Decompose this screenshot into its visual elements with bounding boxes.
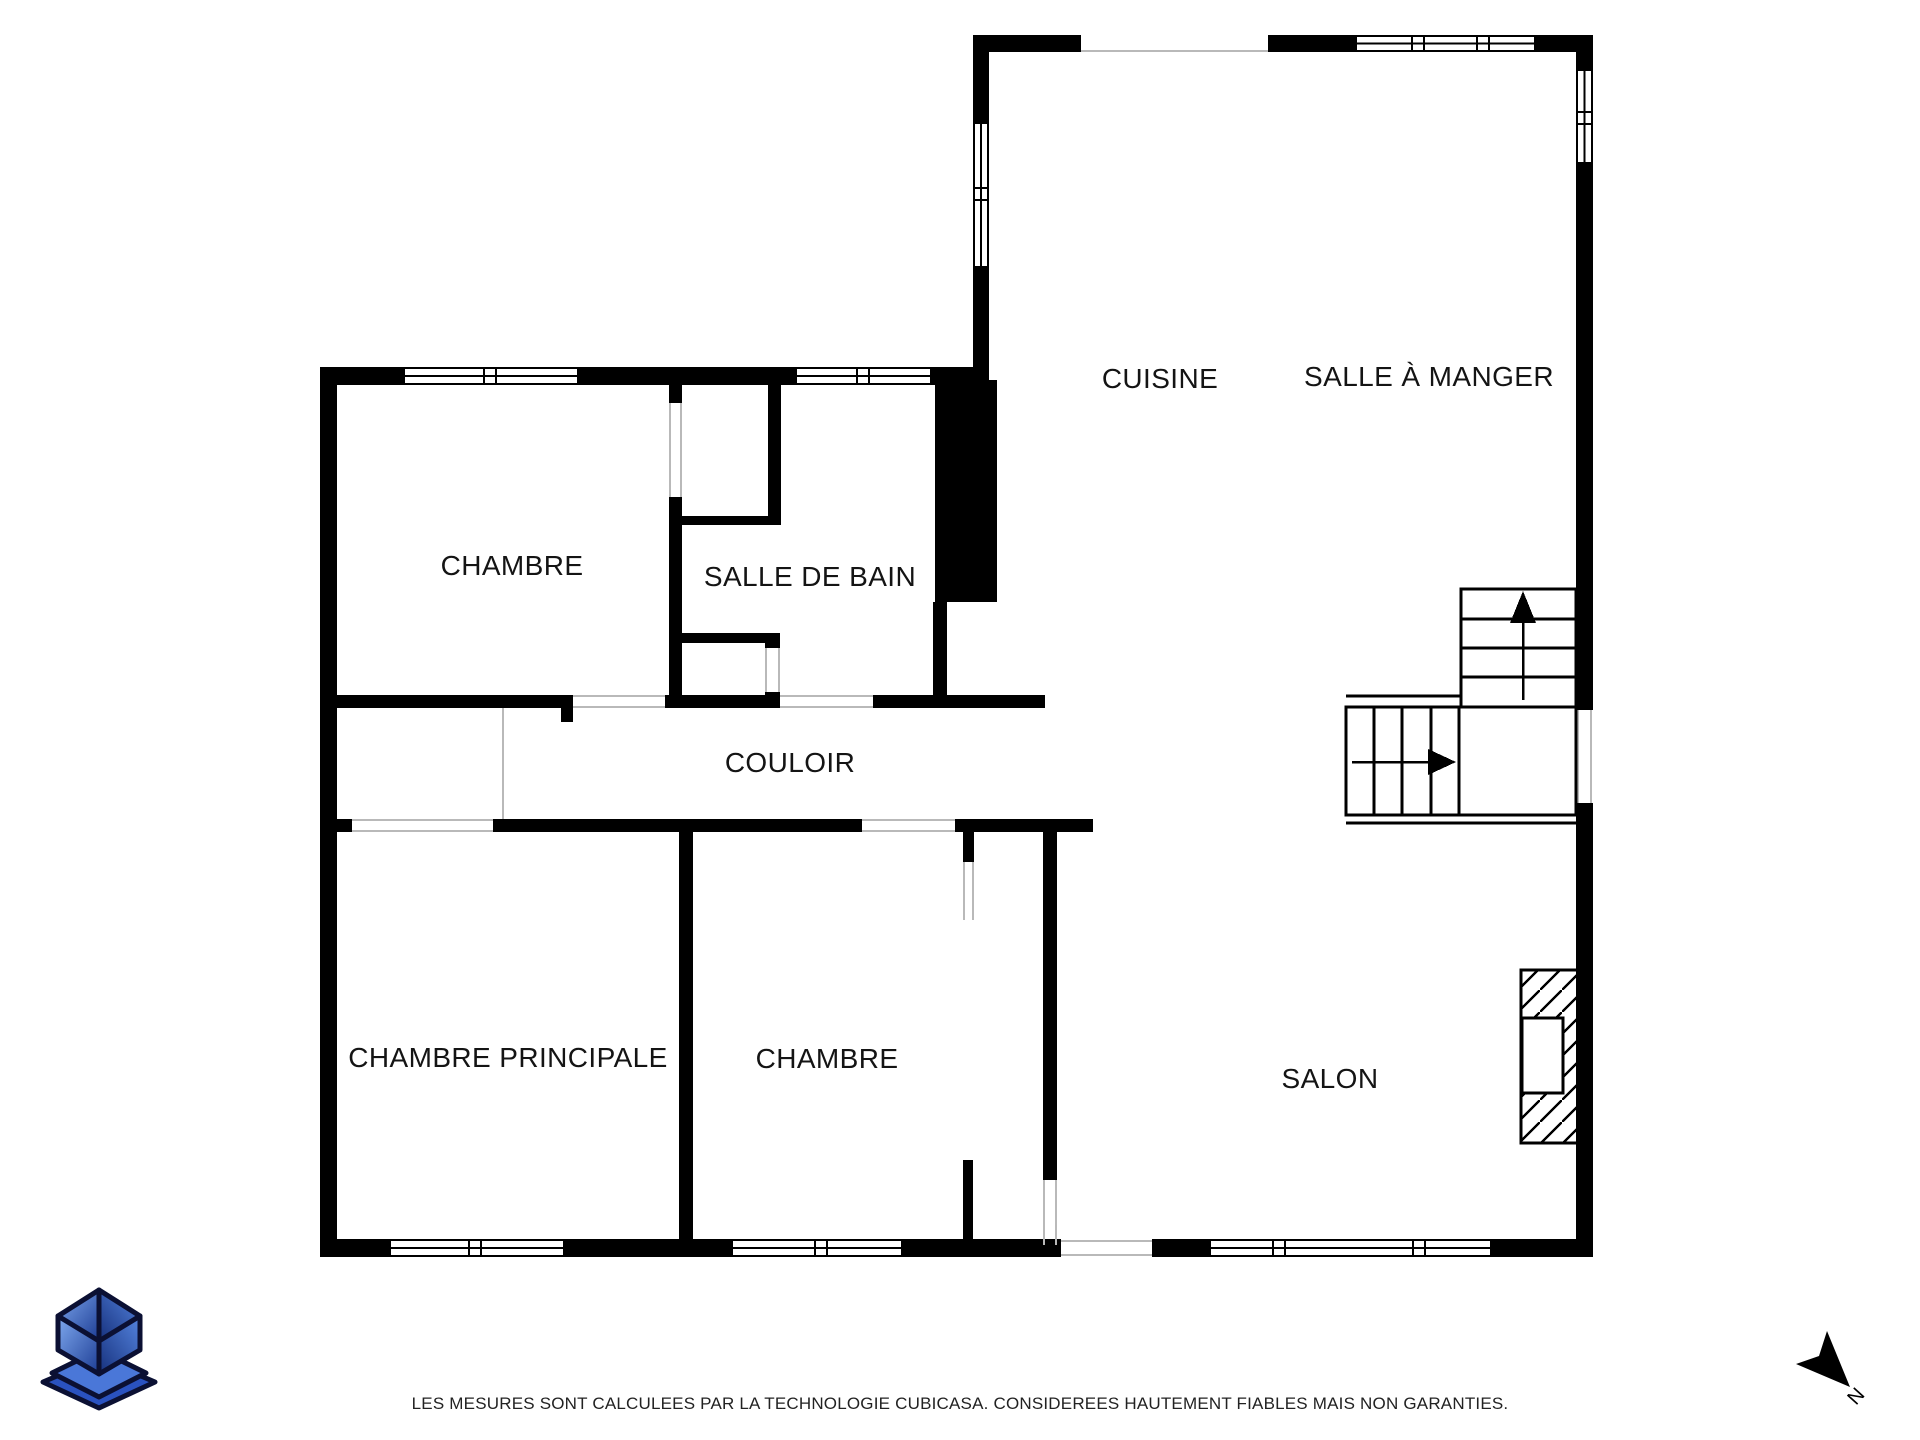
window	[732, 1240, 902, 1256]
wall	[669, 385, 682, 403]
wall	[973, 35, 1081, 52]
wall	[493, 819, 862, 832]
room-label-cuisine: CUISINE	[1102, 363, 1218, 395]
room-label-salle-de-bain: SALLE DE BAIN	[704, 561, 916, 593]
staircase	[1346, 589, 1576, 823]
disclaimer-text: LES MESURES SONT CALCULEES PAR LA TECHNO…	[0, 1394, 1920, 1414]
window	[1210, 1240, 1491, 1256]
wall	[931, 367, 973, 385]
floorplan-drawing	[0, 0, 1920, 1440]
wall	[955, 819, 1093, 832]
wall	[1576, 35, 1593, 70]
wall	[1152, 1239, 1210, 1257]
wall	[973, 267, 989, 385]
floorplan-page: CUISINE SALLE À MANGER CHAMBRE SALLE DE …	[0, 0, 1920, 1440]
wall	[1491, 1239, 1593, 1257]
openings-layer	[352, 51, 1591, 1255]
wall	[765, 633, 780, 648]
wall	[973, 35, 989, 123]
fireplace-firebox	[1522, 1018, 1563, 1093]
wall	[682, 516, 781, 525]
wall	[564, 1239, 732, 1257]
window	[796, 368, 931, 384]
room-label-salon: SALON	[1282, 1063, 1379, 1095]
room-label-chambre-haut: CHAMBRE	[441, 550, 584, 582]
room-label-chambre-principale: CHAMBRE PRINCIPALE	[348, 1042, 667, 1074]
wall	[337, 695, 573, 708]
wall	[669, 497, 682, 708]
window	[404, 368, 578, 384]
window	[390, 1240, 564, 1256]
room-label-salle-a-manger: SALLE À MANGER	[1304, 361, 1554, 393]
wall	[768, 385, 781, 525]
wall	[873, 695, 1045, 708]
wall	[933, 602, 947, 697]
door-jamb	[963, 832, 974, 862]
door-jamb	[561, 708, 573, 722]
wall	[1268, 35, 1356, 52]
room-label-couloir: COULOIR	[725, 747, 855, 779]
wall	[902, 1239, 1061, 1257]
wall	[1043, 819, 1057, 1180]
wall	[320, 1239, 390, 1257]
window	[1356, 36, 1535, 51]
wall	[578, 367, 796, 385]
wall-chimney-mass	[935, 380, 997, 602]
wall	[320, 819, 352, 832]
wall	[1576, 163, 1593, 710]
wall	[963, 1160, 973, 1239]
wall-bedroom-divider	[679, 832, 693, 1239]
wall-exterior-west	[320, 367, 337, 1257]
wall	[665, 695, 780, 708]
window	[974, 123, 988, 267]
window	[1577, 70, 1592, 163]
room-label-chambre-bas: CHAMBRE	[756, 1043, 899, 1075]
fireplace	[1521, 970, 1582, 1143]
